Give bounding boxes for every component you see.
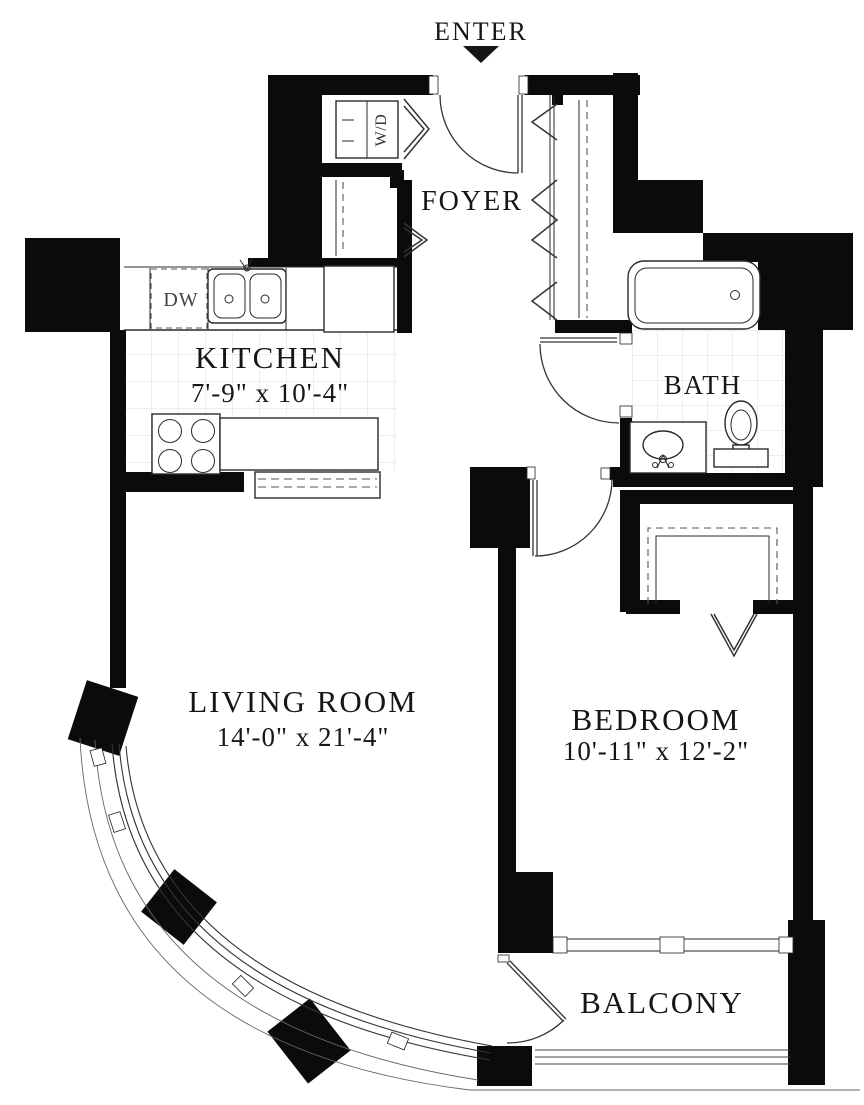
living-room-dims: 14'-0" x 21'-4" bbox=[217, 722, 390, 752]
dishwasher-label: DW bbox=[163, 289, 198, 311]
floor-plan-svg: W/D DW bbox=[0, 0, 864, 1105]
washer-dryer-closet: W/D bbox=[336, 99, 429, 159]
enter-label: ENTER bbox=[434, 17, 528, 46]
enter-arrow-icon bbox=[463, 46, 499, 63]
balcony-railing bbox=[535, 1050, 790, 1064]
bathtub bbox=[628, 261, 760, 329]
balcony-door bbox=[507, 961, 566, 1043]
kitchen-counter-run bbox=[220, 418, 378, 470]
breakfast-bar bbox=[255, 472, 380, 498]
refrigerator bbox=[324, 266, 394, 332]
bathroom-sink bbox=[630, 422, 706, 473]
floor-plan: W/D DW bbox=[0, 0, 864, 1105]
kitchen-label: KITCHEN bbox=[195, 340, 345, 375]
bedroom-window bbox=[553, 937, 793, 953]
entry-door bbox=[440, 95, 522, 173]
bedroom-dims: 10'-11" x 12'-2" bbox=[563, 736, 749, 766]
foyer-closet bbox=[532, 95, 587, 320]
kitchen-dims: 7'-9" x 10'-4" bbox=[191, 378, 349, 408]
bedroom-door bbox=[533, 479, 612, 556]
washer-dryer-label: W/D bbox=[373, 114, 390, 147]
bedroom-closet bbox=[648, 528, 777, 656]
walls bbox=[25, 73, 853, 1086]
living-room-label: LIVING ROOM bbox=[188, 684, 418, 719]
bath-door bbox=[540, 338, 619, 423]
bath-label: BATH bbox=[664, 370, 743, 400]
bedroom-label: BEDROOM bbox=[571, 702, 740, 737]
window-mullion bbox=[90, 748, 408, 1050]
stove bbox=[152, 414, 220, 474]
balcony-label: BALCONY bbox=[580, 985, 744, 1020]
foyer-label: FOYER bbox=[421, 186, 523, 217]
hall-closet bbox=[336, 180, 427, 257]
